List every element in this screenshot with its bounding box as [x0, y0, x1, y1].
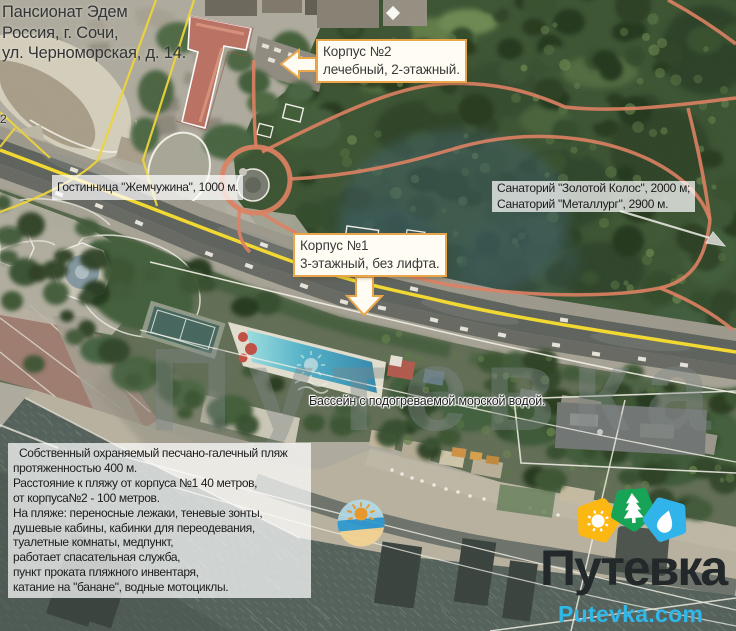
svg-text:Путевка: Путевка	[148, 324, 726, 456]
